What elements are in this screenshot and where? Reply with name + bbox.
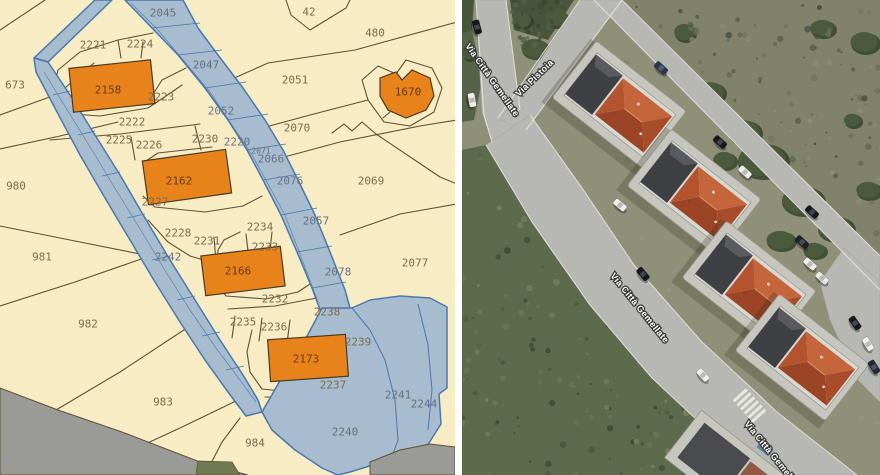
ground-texture — [641, 237, 643, 239]
parcel-number: 983 — [153, 396, 173, 409]
vegetation-texture — [466, 358, 471, 363]
vegetation-texture — [573, 383, 575, 385]
vegetation-texture — [689, 37, 695, 43]
vegetation-texture — [849, 133, 854, 138]
vegetation-texture — [557, 377, 563, 383]
vegetation-texture — [818, 15, 820, 17]
vegetation-texture — [835, 155, 838, 158]
vegetation-texture — [530, 347, 535, 352]
parcel-number: 982 — [78, 318, 98, 331]
vegetation-texture — [537, 305, 540, 308]
vegetation-texture — [872, 186, 875, 189]
vegetation-texture — [536, 24, 540, 28]
parcel-number: 2242 — [155, 251, 182, 264]
vegetation-texture — [807, 157, 811, 161]
vegetation-texture — [528, 317, 532, 321]
vegetation-texture — [586, 353, 589, 356]
parcel-number: 2228 — [165, 227, 192, 240]
vegetation-texture — [467, 192, 470, 195]
parcel-number: 673 — [5, 79, 25, 92]
vegetation-texture — [511, 222, 513, 224]
vegetation-texture — [475, 349, 480, 354]
vegetation-texture — [804, 26, 811, 33]
ground-texture — [761, 245, 763, 247]
parcel-number: 981 — [32, 251, 52, 264]
parcel-number: 980 — [6, 180, 26, 193]
vegetation-texture — [510, 9, 515, 14]
parcel-number: 2233 — [252, 241, 279, 254]
vegetation-texture — [549, 7, 554, 12]
vegetation-texture — [532, 41, 538, 47]
vegetation-texture — [858, 8, 864, 14]
parcel-number: 2078 — [325, 266, 352, 279]
vegetation-texture — [651, 465, 655, 469]
vegetation-texture — [500, 376, 505, 381]
ground-texture — [667, 288, 672, 293]
parcel-number: 2231 — [194, 235, 221, 248]
vegetation-texture — [653, 406, 657, 410]
vegetation-texture — [589, 447, 595, 453]
building-number: 2166 — [225, 265, 252, 278]
vegetation-texture — [742, 32, 748, 38]
vegetation-texture — [858, 161, 863, 166]
vegetation-texture — [504, 247, 511, 254]
vegetation-texture — [517, 222, 523, 228]
parcel-number: 2221 — [80, 39, 107, 52]
vegetation-texture — [865, 143, 872, 150]
vegetation-texture — [789, 103, 793, 107]
parcel-number: 480 — [365, 27, 385, 40]
vegetation-texture — [615, 395, 619, 399]
vegetation-texture — [586, 410, 589, 413]
vegetation-texture — [607, 425, 613, 431]
vegetation-texture — [867, 10, 872, 15]
car-windshield — [469, 97, 475, 102]
vegetation-texture — [654, 432, 660, 438]
vegetation-texture — [716, 86, 719, 89]
vegetation-texture — [811, 113, 814, 116]
vegetation-texture — [575, 302, 579, 306]
vegetation-texture — [538, 37, 542, 41]
ground-texture — [859, 416, 863, 420]
vegetation-texture — [519, 27, 524, 32]
parcel-number: 2239 — [345, 336, 372, 349]
parcel-number: 2224 — [127, 38, 154, 51]
tree-canopy — [851, 32, 878, 52]
figure-side-by-side: 6732221222442480205122232222207022252226… — [0, 0, 880, 475]
parcel-number: 2057 — [303, 215, 330, 228]
vegetation-texture — [640, 442, 644, 446]
tree-canopy — [856, 182, 879, 198]
vegetation-texture — [539, 370, 543, 374]
vegetation-texture — [636, 425, 640, 429]
vegetation-texture — [858, 108, 862, 112]
vegetation-texture — [713, 52, 717, 56]
vegetation-texture — [559, 1, 562, 4]
vegetation-texture — [865, 103, 867, 105]
vegetation-texture — [518, 310, 524, 316]
vegetation-texture — [477, 310, 482, 315]
building-number: 2158 — [95, 84, 122, 97]
vegetation-texture — [585, 337, 589, 341]
vegetation-texture — [754, 24, 756, 26]
vegetation-texture — [463, 316, 469, 322]
vegetation-texture — [876, 147, 878, 149]
vegetation-texture — [526, 36, 529, 39]
parcel-number: 2223 — [148, 91, 175, 104]
vegetation-texture — [521, 13, 523, 15]
satellite-map: Via Città GemellateVia PistoiaVia Città … — [462, 0, 880, 475]
vegetation-texture — [784, 24, 788, 28]
vegetation-texture — [531, 26, 533, 28]
vegetation-texture — [808, 119, 813, 124]
vegetation-texture — [514, 23, 520, 29]
vegetation-texture — [474, 330, 478, 334]
vegetation-texture — [650, 432, 653, 435]
vegetation-texture — [701, 71, 704, 74]
parcel-number: 2076 — [277, 175, 304, 188]
parcel-number: 2241 — [385, 389, 412, 402]
vegetation-texture — [529, 343, 534, 348]
vegetation-texture — [731, 69, 735, 73]
vegetation-texture — [777, 36, 783, 42]
vegetation-texture — [545, 348, 550, 353]
parcel-number: 2227 — [142, 196, 169, 209]
vegetation-texture — [833, 173, 838, 178]
parcel-number: 2240 — [332, 426, 359, 439]
vegetation-texture — [869, 200, 874, 205]
vegetation-texture — [827, 60, 832, 65]
parcel-number: 2077 — [402, 257, 429, 270]
vegetation-texture — [869, 65, 872, 68]
vegetation-texture — [488, 472, 490, 474]
parcel-number: 2234 — [247, 221, 274, 234]
parcel-number: 2220 — [224, 136, 251, 149]
satellite-map-panel: Via Città GemellateVia PistoiaVia Città … — [462, 0, 880, 475]
vegetation-texture — [576, 375, 580, 379]
vegetation-texture — [549, 400, 555, 406]
vegetation-texture — [665, 410, 670, 415]
parcel-number: 2047 — [193, 59, 220, 72]
vegetation-texture — [837, 48, 841, 52]
vegetation-texture — [546, 24, 553, 31]
vegetation-texture — [524, 237, 531, 244]
vegetation-texture — [608, 415, 613, 420]
vegetation-texture — [531, 338, 535, 342]
parcel-number: 2070 — [284, 122, 311, 135]
vegetation-texture — [609, 389, 611, 391]
vegetation-texture — [873, 122, 877, 126]
vegetation-texture — [545, 461, 552, 468]
vegetation-texture — [851, 67, 855, 71]
vegetation-texture — [516, 416, 519, 419]
vegetation-texture — [789, 156, 795, 162]
vegetation-texture — [658, 24, 662, 28]
vegetation-texture — [518, 35, 523, 40]
tree-canopy — [844, 114, 860, 127]
vegetation-texture — [806, 166, 808, 168]
parcel-number: 2222 — [119, 116, 146, 129]
vegetation-texture — [471, 317, 473, 319]
vegetation-texture — [539, 12, 542, 15]
parcel-number: 2232 — [262, 293, 289, 306]
vegetation-texture — [734, 99, 737, 102]
vegetation-texture — [817, 5, 822, 10]
vegetation-texture — [553, 279, 560, 286]
vegetation-texture — [687, 22, 693, 28]
vegetation-texture — [603, 379, 609, 385]
vegetation-texture — [811, 74, 818, 81]
vegetation-texture — [780, 121, 783, 124]
vegetation-texture — [840, 64, 842, 66]
building-number: 1670 — [395, 86, 422, 99]
vegetation-texture — [513, 2, 518, 7]
vegetation-texture — [856, 198, 862, 204]
parcel-number: 2230 — [192, 133, 219, 146]
vegetation-texture — [756, 58, 758, 60]
vegetation-texture — [529, 461, 531, 463]
parcel-number: 2244 — [411, 398, 438, 411]
parcel-number: 2237 — [320, 379, 347, 392]
parcel-number: 2052 — [208, 105, 235, 118]
vegetation-texture — [745, 37, 751, 43]
vegetation-texture — [466, 378, 468, 380]
vegetation-texture — [805, 143, 807, 145]
parcel-number: 2226 — [136, 139, 163, 152]
vegetation-texture — [513, 432, 515, 434]
vegetation-texture — [536, 32, 542, 38]
vegetation-texture — [578, 338, 580, 340]
vegetation-texture — [789, 130, 792, 133]
vegetation-texture — [604, 405, 609, 410]
parcel-number: 2235 — [230, 316, 257, 329]
vegetation-texture — [560, 441, 567, 448]
vegetation-texture — [658, 411, 660, 413]
vegetation-texture — [802, 161, 806, 165]
vegetation-texture — [538, 381, 542, 385]
vegetation-texture — [735, 17, 740, 22]
vegetation-texture — [517, 425, 519, 427]
vegetation-texture — [497, 205, 502, 210]
vegetation-texture — [868, 122, 872, 126]
vegetation-texture — [727, 72, 733, 78]
vegetation-texture — [737, 32, 742, 37]
vegetation-texture — [473, 391, 478, 396]
vegetation-texture — [693, 29, 699, 35]
vegetation-texture — [577, 393, 580, 396]
vegetation-texture — [731, 34, 733, 36]
vegetation-texture — [526, 302, 530, 306]
vegetation-texture — [477, 284, 480, 287]
vegetation-texture — [787, 91, 792, 96]
vegetation-texture — [803, 56, 806, 59]
ground-texture — [875, 421, 879, 425]
vegetation-texture — [873, 230, 879, 236]
vegetation-texture — [520, 44, 522, 46]
vegetation-texture — [501, 307, 504, 310]
vegetation-texture — [814, 33, 820, 39]
vegetation-texture — [492, 400, 497, 405]
vegetation-texture — [773, 42, 777, 46]
vegetation-texture — [496, 254, 502, 260]
vegetation-texture — [727, 39, 729, 41]
vegetation-texture — [758, 81, 761, 84]
vegetation-texture — [548, 368, 551, 371]
vegetation-texture — [647, 442, 653, 448]
vegetation-texture — [496, 420, 500, 424]
cadastral-map-panel: 6732221222442480205122232222207022252226… — [0, 0, 455, 475]
vegetation-texture — [502, 323, 509, 330]
vegetation-texture — [526, 285, 532, 291]
building-number: 2162 — [166, 175, 193, 188]
vegetation-texture — [479, 344, 481, 346]
parcel-number: 42 — [302, 6, 315, 19]
vegetation-texture — [504, 294, 509, 299]
vegetation-texture — [521, 216, 527, 222]
vegetation-texture — [814, 143, 817, 146]
vegetation-texture — [758, 77, 762, 81]
vegetation-texture — [640, 467, 643, 470]
tree-canopy — [767, 231, 794, 249]
vegetation-texture — [850, 98, 853, 101]
cadastral-map: 6732221222442480205122232222207022252226… — [0, 0, 455, 475]
vegetation-texture — [826, 32, 832, 38]
vegetation-texture — [635, 6, 637, 8]
vegetation-texture — [795, 118, 801, 124]
vegetation-texture — [812, 60, 818, 66]
vegetation-texture — [498, 358, 501, 361]
vegetation-texture — [768, 136, 775, 143]
vegetation-texture — [669, 415, 673, 419]
vegetation-texture — [485, 398, 489, 402]
vegetation-texture — [517, 0, 519, 2]
vegetation-texture — [664, 399, 667, 402]
ground-texture — [580, 138, 582, 140]
parcel-number: 2051 — [282, 74, 309, 87]
vegetation-texture — [678, 9, 683, 14]
vegetation-texture — [855, 94, 858, 97]
vegetation-texture — [500, 360, 505, 365]
vegetation-texture — [801, 4, 804, 7]
vegetation-texture — [526, 29, 531, 34]
vegetation-texture — [695, 15, 699, 19]
vegetation-texture — [816, 116, 818, 118]
parcel-number: 2066 — [258, 153, 285, 166]
vegetation-texture — [541, 265, 544, 268]
vegetation-texture — [758, 113, 760, 115]
vegetation-texture — [531, 7, 535, 11]
vegetation-texture — [773, 109, 776, 112]
vegetation-texture — [659, 465, 665, 471]
parcel-number: 2069 — [358, 175, 385, 188]
vegetation-texture — [589, 414, 594, 419]
parcel-number: 2236 — [261, 321, 288, 334]
vegetation-texture — [698, 60, 703, 65]
vegetation-texture — [464, 368, 470, 374]
parcel-number: 2045 — [150, 7, 177, 20]
vegetation-texture — [726, 32, 733, 39]
vegetation-texture — [861, 95, 867, 101]
parcel-number: 2225 — [106, 134, 133, 147]
vegetation-texture — [720, 24, 726, 30]
vegetation-texture — [762, 53, 767, 58]
vegetation-texture — [601, 413, 603, 415]
vegetation-texture — [479, 156, 484, 161]
vegetation-texture — [609, 458, 612, 461]
parcel-number: 984 — [245, 437, 265, 450]
vegetation-texture — [814, 46, 817, 49]
vegetation-texture — [511, 21, 514, 24]
parcel-number: 2238 — [314, 306, 341, 319]
vegetation-texture — [868, 136, 871, 139]
vegetation-texture — [826, 132, 828, 134]
building-number: 2173 — [293, 353, 320, 366]
vegetation-texture — [841, 51, 843, 53]
vegetation-texture — [574, 420, 579, 425]
vegetation-texture — [485, 431, 490, 436]
vegetation-texture — [550, 313, 555, 318]
vegetation-texture — [828, 138, 831, 141]
vegetation-texture — [634, 439, 639, 444]
vegetation-texture — [590, 383, 592, 385]
